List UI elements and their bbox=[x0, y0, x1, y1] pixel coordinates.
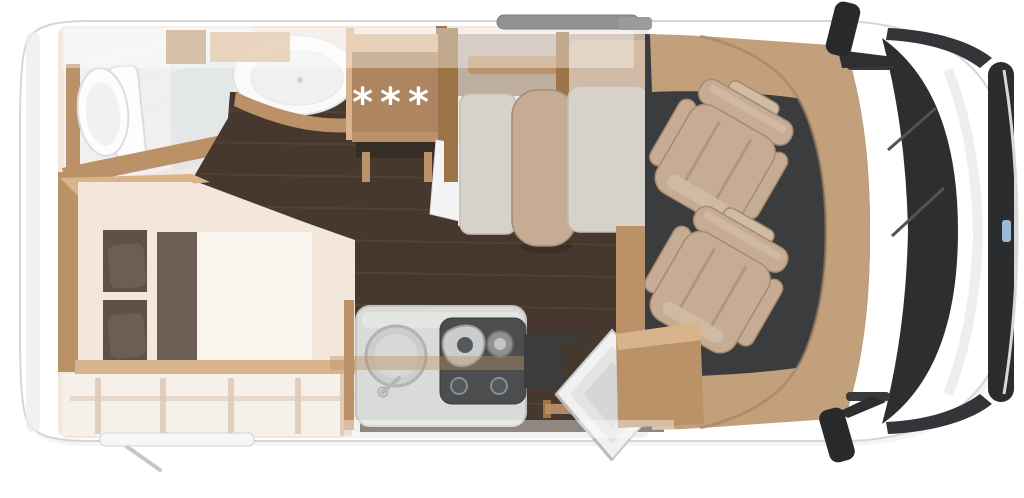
bench-seat-left bbox=[460, 94, 516, 234]
burner-small bbox=[451, 378, 467, 394]
washbasin-drain bbox=[297, 77, 303, 83]
bed-side-frame bbox=[58, 172, 80, 372]
rear-step bbox=[100, 433, 254, 470]
bench-seat-right bbox=[568, 86, 648, 232]
brand-badge bbox=[1002, 220, 1011, 242]
overhead-rail-band bbox=[330, 356, 556, 370]
burner-cover-center bbox=[457, 337, 473, 353]
step-support-rod bbox=[126, 446, 160, 470]
fridge-leg bbox=[424, 152, 432, 182]
garage-roof-wash bbox=[62, 374, 360, 436]
roof-wash-top bbox=[62, 28, 634, 68]
fridge-leg bbox=[362, 152, 370, 182]
side-seat bbox=[512, 90, 576, 246]
floorplan-canvas: *** bbox=[0, 0, 1024, 498]
garage-storage bbox=[62, 374, 360, 436]
fridge-bottom-trim bbox=[352, 132, 438, 142]
bed-blanket bbox=[197, 232, 312, 362]
step-bar bbox=[100, 433, 254, 446]
motorhome-floorplan: *** bbox=[0, 0, 1024, 498]
roof-vent bbox=[618, 17, 652, 30]
awning-bar bbox=[497, 15, 639, 29]
kitchen bbox=[330, 300, 556, 430]
pillow-top bbox=[103, 230, 147, 292]
door-wardrobe bbox=[616, 322, 704, 428]
bed-runner bbox=[157, 232, 197, 362]
rear-wall-shading bbox=[26, 32, 40, 432]
freezer-rating-symbols: *** bbox=[352, 80, 436, 126]
bed-foot-rail bbox=[75, 360, 360, 374]
pillow-bottom bbox=[103, 300, 147, 362]
roof-wash-bottom bbox=[344, 420, 674, 438]
burner-large-cap bbox=[494, 338, 506, 350]
burner-small bbox=[491, 378, 507, 394]
